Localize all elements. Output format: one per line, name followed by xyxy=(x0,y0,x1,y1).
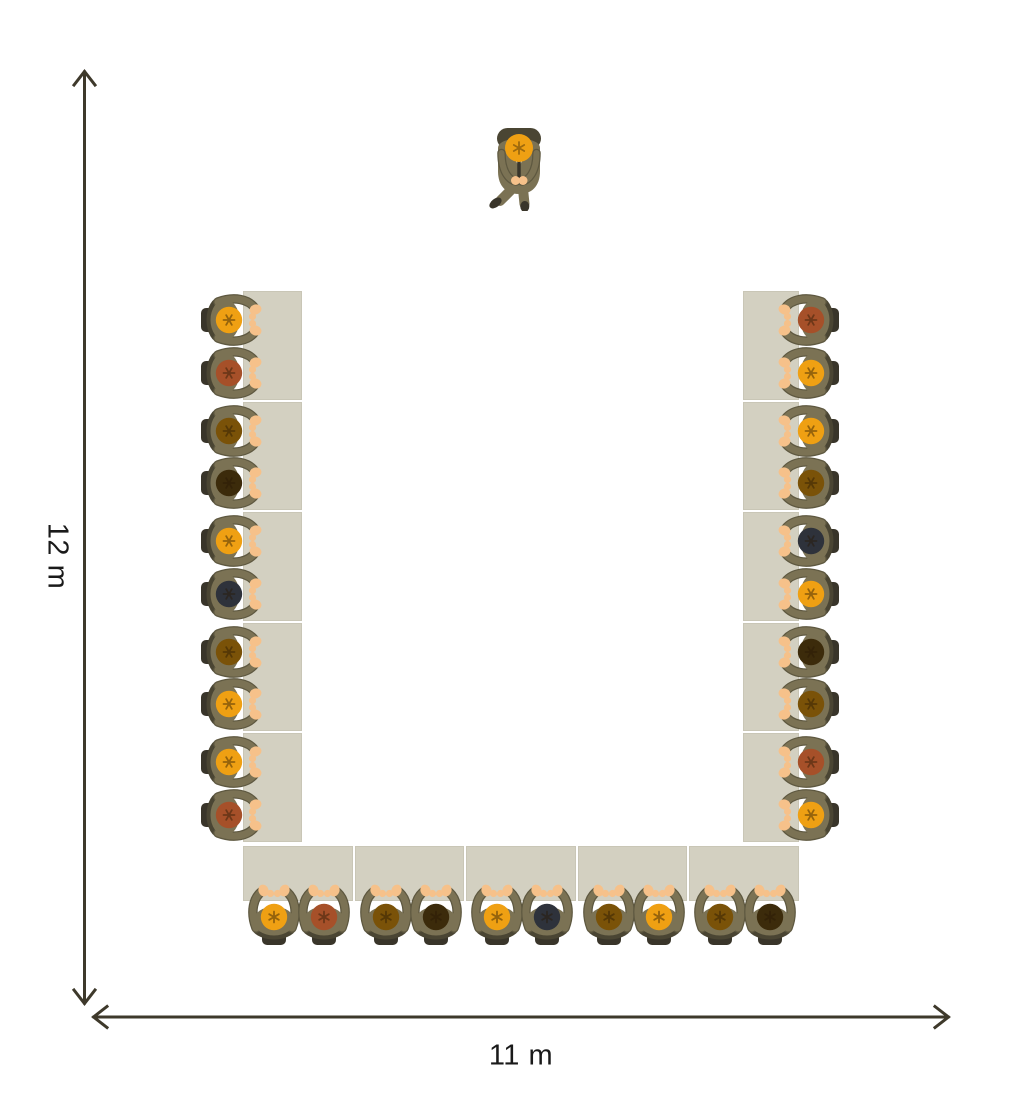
hands xyxy=(480,883,514,898)
seat-bottom-2 xyxy=(292,882,356,946)
seated-person-figure xyxy=(200,451,264,515)
hands xyxy=(777,576,792,610)
hands xyxy=(777,687,792,721)
hands xyxy=(591,883,625,898)
seated-person-figure xyxy=(200,562,264,626)
seat-left-4 xyxy=(200,451,264,515)
seated-person-figure xyxy=(200,341,264,405)
seat-right-10 xyxy=(776,783,840,847)
hands xyxy=(248,303,263,337)
hands xyxy=(418,883,452,898)
seated-person-figure xyxy=(627,882,691,946)
hands xyxy=(777,466,792,500)
seat-left-8 xyxy=(200,672,264,736)
seated-person-figure xyxy=(292,882,356,946)
seated-person-figure xyxy=(200,783,264,847)
seat-bottom-6 xyxy=(515,882,579,946)
seated-person-figure xyxy=(404,882,468,946)
hands xyxy=(641,883,675,898)
height-dimension-label: 12 m xyxy=(41,523,74,589)
seat-left-2 xyxy=(200,341,264,405)
hands xyxy=(777,745,792,779)
hands xyxy=(777,524,792,558)
seat-bottom-10 xyxy=(738,882,802,946)
seated-person-figure xyxy=(776,672,840,736)
seat-right-6 xyxy=(776,562,840,626)
seat-bottom-4 xyxy=(404,882,468,946)
hands xyxy=(248,524,263,558)
hands xyxy=(248,687,263,721)
seated-person-figure xyxy=(776,562,840,626)
hands xyxy=(703,883,737,898)
seated-person-figure xyxy=(776,451,840,515)
hands xyxy=(777,634,792,668)
hands xyxy=(777,413,792,447)
presenter-person xyxy=(486,115,552,211)
seating-area xyxy=(0,0,1024,1102)
hands xyxy=(248,576,263,610)
hands xyxy=(530,883,564,898)
seat-right-8 xyxy=(776,672,840,736)
hands xyxy=(248,745,263,779)
presenter-figure xyxy=(486,115,552,211)
hands xyxy=(753,883,787,898)
seated-person-figure xyxy=(515,882,579,946)
floor-plan-canvas: 12 m 11 m xyxy=(0,0,1024,1102)
hands xyxy=(368,883,402,898)
hands xyxy=(248,797,263,831)
width-dimension-label: 11 m xyxy=(489,1040,553,1073)
hands xyxy=(248,466,263,500)
hands xyxy=(777,355,792,389)
hands xyxy=(248,634,263,668)
seat-bottom-8 xyxy=(627,882,691,946)
seated-person-figure xyxy=(776,341,840,405)
seat-right-4 xyxy=(776,451,840,515)
seated-person-figure xyxy=(776,783,840,847)
hands xyxy=(257,883,291,898)
hands xyxy=(777,797,792,831)
hands xyxy=(248,413,263,447)
hands xyxy=(248,355,263,389)
seat-left-10 xyxy=(200,783,264,847)
hands xyxy=(307,883,341,898)
hands xyxy=(777,303,792,337)
seated-person-figure xyxy=(738,882,802,946)
seated-person-figure xyxy=(200,672,264,736)
seat-left-6 xyxy=(200,562,264,626)
seat-right-2 xyxy=(776,341,840,405)
